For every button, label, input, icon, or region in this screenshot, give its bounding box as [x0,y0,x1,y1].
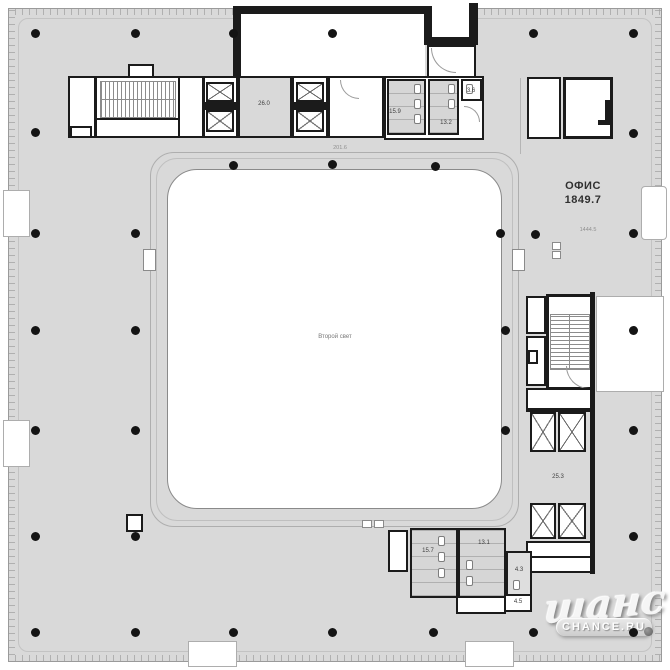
wc-fixture [513,580,520,590]
column-dot [229,29,238,38]
facade-notch-bottom-1 [188,641,237,667]
column-dot [131,229,140,238]
column-dot [131,628,140,637]
wall [204,102,236,110]
top-notch-void [432,0,469,37]
column-dot [629,29,638,38]
wc-fixture [414,84,421,94]
wc-vestibule [388,530,408,572]
facade-notch-left-2 [3,420,30,467]
column-dot [629,129,638,138]
wall [294,102,326,110]
atrium-door-left [143,249,156,271]
column-dot [629,229,638,238]
facade-notch-bottom-2 [465,641,514,667]
wall [590,292,595,574]
column-dot [529,29,538,38]
wc-fixture [438,536,445,546]
wall [526,408,592,412]
staircase-right [550,314,590,370]
column-dot [31,532,40,541]
atrium-door-right [512,249,525,271]
office-door-tab-2 [552,251,561,259]
dimension-label: 201.6 [322,145,358,152]
atrium-door-bottom-2 [374,520,384,528]
elevator-shaft [296,110,324,132]
atrium-door-bottom-1 [362,520,372,528]
stair-rail [100,99,176,100]
column-dot [328,29,337,38]
stair-top-tab [128,64,154,78]
facade-notch-right-1 [641,186,667,240]
elevator-shaft [530,503,556,539]
column-dot [31,128,40,137]
elevator-shaft [206,82,234,102]
room-label-lobby-right: 25.3 [543,474,573,482]
room-label-wc-bottom-3: 4.3 [505,567,533,575]
column-dot [31,628,40,637]
column-dot [629,426,638,435]
wc-fixture [448,99,455,109]
wc-fixture [414,99,421,109]
wall [178,76,180,138]
office-label: ОФИС 1849.7 [548,180,618,208]
watermark-dot [644,627,653,636]
column-dot [629,532,638,541]
room-label-wc-top-1: 15.9 [383,109,407,117]
column-dot [131,326,140,335]
right-core-closet [528,350,538,364]
office-sub-area: 1444.5 [568,227,608,234]
column-dot [131,29,140,38]
column-dot [31,426,40,435]
elevator-shaft [558,503,586,539]
wall [233,6,241,78]
room-label-lobby-top: 26.0 [249,101,279,109]
wall [526,556,592,558]
elevator-shaft [206,110,234,132]
office-name: ОФИС [548,180,618,194]
column-dot [229,161,238,170]
right-core-room-1 [526,296,546,334]
column-dot [501,426,510,435]
stair-rail [569,314,570,370]
column-dot [431,162,440,171]
wall [233,6,433,14]
column-dot [31,326,40,335]
wc-bottom-room [456,596,506,614]
room-label-wc-top-3: 3.6 [459,88,483,96]
wc-room [410,528,458,598]
shaft-closet [70,126,92,138]
wall [469,3,478,45]
wall [94,76,97,138]
room-label-wc-bottom-1: 15.7 [415,548,441,556]
wall [605,100,611,125]
elevator-shaft [530,412,556,452]
elevator-shaft [558,412,586,452]
facade-ticks-left [8,8,15,662]
wc-fixture [448,84,455,94]
atrium-label: Второй свет [295,334,375,342]
atrium-corner-box [126,514,143,532]
facade-notch-left-1 [3,190,30,237]
facade-ticks-bottom [8,655,662,662]
wc-fixture [438,568,445,578]
entrance-hall [240,12,425,78]
room-label-wc-bottom-4: 4.5 [504,599,532,607]
room-label-wc-bottom-2: 13.1 [469,540,499,548]
column-dot [328,628,337,637]
column-dot [629,326,638,335]
column-dot [531,230,540,239]
column-dot [529,628,538,637]
office-area: 1849.7 [548,194,618,208]
office-door-tab-1 [552,242,561,250]
top-right-room-1 [527,77,561,139]
elevator-shaft [296,82,324,102]
wc-fixture [466,576,473,586]
wc-fixture [466,560,473,570]
column-dot [496,229,505,238]
column-dot [501,326,510,335]
facade-recess-right [596,296,664,392]
column-dot [229,628,238,637]
column-dot [629,628,638,637]
wall [326,76,330,138]
room-label-wc-top-2: 13.2 [432,120,460,128]
column-dot [131,532,140,541]
column-dot [131,426,140,435]
partition-line [520,78,521,154]
watermark: шанс CHANCE.RU [540,585,670,650]
column-dot [31,29,40,38]
column-dot [31,229,40,238]
wc-fixture [414,114,421,124]
wall [96,118,180,120]
floor-plan: Второй свет [0,0,670,670]
column-dot [328,160,337,169]
column-dot [429,628,438,637]
